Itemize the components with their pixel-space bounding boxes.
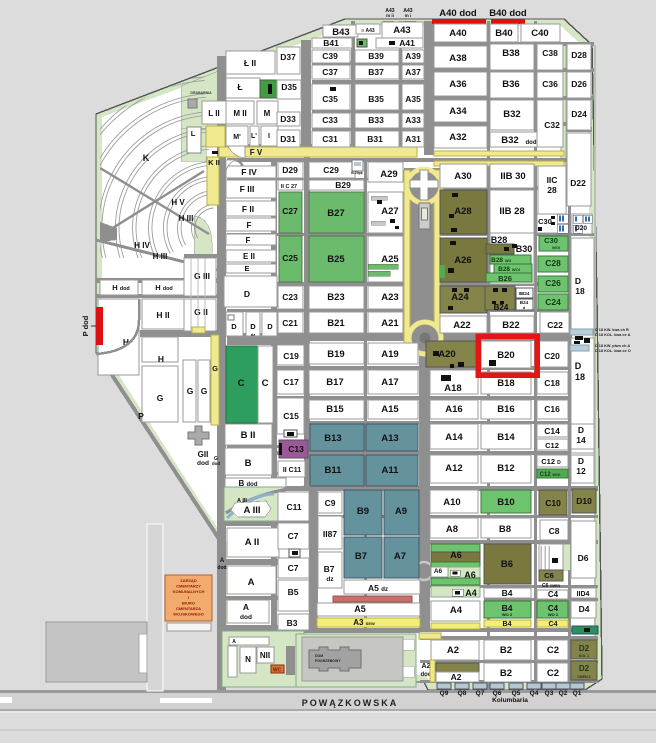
svg-text:D: D <box>267 322 273 331</box>
svg-text:B26: B26 <box>498 274 512 283</box>
svg-text:B31: B31 <box>367 134 383 144</box>
svg-text:C11: C11 <box>286 502 301 512</box>
svg-text:D26: D26 <box>571 79 587 89</box>
svg-text:B: B <box>245 458 252 469</box>
svg-text:B II: B II <box>241 430 256 441</box>
svg-text:B10: B10 <box>497 497 514 508</box>
svg-text:C30: C30 <box>538 217 552 226</box>
svg-text:D6: D6 <box>578 553 589 563</box>
svg-text:M: M <box>264 109 271 118</box>
svg-text:A37: A37 <box>405 67 421 77</box>
svg-text:B39: B39 <box>368 51 384 61</box>
svg-text:B15: B15 <box>326 404 344 415</box>
svg-text:B36: B36 <box>502 79 519 90</box>
svg-text:D33: D33 <box>280 114 296 124</box>
svg-text:I: I <box>188 595 189 600</box>
svg-text:m i: m i <box>405 13 412 18</box>
svg-text:Kolumbaria: Kolumbaria <box>492 697 528 704</box>
svg-text:A6: A6 <box>450 550 462 560</box>
svg-text:B28: B28 <box>491 235 508 245</box>
svg-text:B37: B37 <box>368 67 384 77</box>
svg-text:B18: B18 <box>497 378 514 389</box>
svg-text:B32: B32 <box>501 135 518 146</box>
svg-text:C30: C30 <box>544 236 558 245</box>
svg-text:D35: D35 <box>281 82 297 92</box>
svg-text:D29: D29 <box>282 165 298 175</box>
svg-text:dod: dod <box>526 140 537 146</box>
svg-text:IIB 28: IIB 28 <box>499 206 524 217</box>
svg-text:A4: A4 <box>450 605 463 616</box>
svg-text:D: D <box>231 322 237 331</box>
svg-text:D20: D20 <box>575 225 587 232</box>
svg-text:C36: C36 <box>542 79 558 89</box>
svg-text:C: C <box>262 378 269 389</box>
svg-text:F: F <box>247 221 252 230</box>
svg-text:A33: A33 <box>405 115 421 125</box>
svg-text:II C11: II C11 <box>283 467 301 474</box>
svg-text:IIC: IIC <box>547 175 558 185</box>
svg-text:B.29pk: B.29pk <box>351 171 363 175</box>
svg-text:A28: A28 <box>454 206 471 217</box>
svg-text:POWĄZKOWSKA: POWĄZKOWSKA <box>302 698 399 708</box>
svg-text:L II: L II <box>208 109 219 118</box>
svg-text:D22: D22 <box>570 178 586 188</box>
svg-text:Q2: Q2 <box>559 690 568 697</box>
svg-text:B14: B14 <box>497 432 515 443</box>
svg-text:B21: B21 <box>327 318 345 329</box>
svg-text:A38: A38 <box>449 53 466 64</box>
svg-text:A II: A II <box>245 537 259 548</box>
svg-text:A30: A30 <box>454 171 471 182</box>
svg-text:dod: dod <box>197 460 209 467</box>
svg-text:C33: C33 <box>322 115 338 125</box>
svg-text:C20: C20 <box>544 351 560 361</box>
svg-text:G II: G II <box>194 307 208 317</box>
svg-text:A: A <box>248 577 255 588</box>
svg-text:C12: C12 <box>545 441 559 450</box>
svg-text:A2: A2 <box>447 645 459 656</box>
svg-text:ZARZĄD: ZARZĄD <box>180 578 197 583</box>
svg-text:D: D <box>578 425 584 435</box>
svg-text:POGRZEBOWY: POGRZEBOWY <box>315 659 341 663</box>
svg-text:H V: H V <box>171 198 185 207</box>
svg-text:Q9: Q9 <box>440 690 449 697</box>
svg-text:C9: C9 <box>325 498 336 508</box>
svg-text:WOJSKOWEGO: WOJSKOWEGO <box>173 612 203 617</box>
svg-text:A41: A41 <box>399 38 415 48</box>
svg-text:B19: B19 <box>327 349 344 360</box>
svg-text:D: D <box>575 276 581 286</box>
svg-text:A19: A19 <box>381 349 398 360</box>
svg-text:A39: A39 <box>405 51 421 61</box>
svg-text:B16: B16 <box>497 404 514 415</box>
svg-text:P dod: P dod <box>81 315 90 336</box>
svg-text:C38: C38 <box>542 48 558 58</box>
svg-text:Q3: Q3 <box>545 690 554 697</box>
svg-text:C4: C4 <box>549 621 558 628</box>
svg-text:B30: B30 <box>516 244 533 254</box>
svg-text:DOM: DOM <box>315 654 323 658</box>
svg-text:A18: A18 <box>444 383 461 394</box>
svg-text:B5: B5 <box>288 587 299 597</box>
svg-text:C19: C19 <box>283 351 299 361</box>
svg-text:A III: A III <box>243 505 260 516</box>
svg-text:B20: B20 <box>497 350 514 361</box>
svg-text:M': M' <box>233 134 241 141</box>
svg-text:Q6: Q6 <box>493 690 502 697</box>
svg-text:K: K <box>143 153 150 163</box>
svg-text:A10: A10 <box>443 497 460 508</box>
svg-text:D: D <box>575 361 582 371</box>
svg-text:C40: C40 <box>531 28 548 39</box>
svg-text:C13: C13 <box>288 444 304 454</box>
svg-text:Q1: Q1 <box>573 690 582 697</box>
svg-text:C29: C29 <box>323 165 339 175</box>
svg-text:A26: A26 <box>454 255 471 266</box>
svg-text:B23: B23 <box>327 292 344 303</box>
svg-text:L: L <box>191 129 196 138</box>
svg-text:B2: B2 <box>500 645 512 656</box>
svg-text:m ii: m ii <box>386 13 394 18</box>
svg-text:C35: C35 <box>322 94 338 104</box>
svg-text:F V: F V <box>250 148 263 157</box>
svg-text:D: D <box>250 322 256 331</box>
svg-text:B9: B9 <box>357 506 369 517</box>
svg-text:WOI: WOI <box>552 245 560 250</box>
svg-text:C2: C2 <box>547 668 559 679</box>
svg-text:B7: B7 <box>355 551 367 562</box>
svg-text:C17: C17 <box>283 377 299 387</box>
svg-text:WO 2: WO 2 <box>548 612 559 617</box>
svg-text:KOL 1: KOL 1 <box>579 654 589 658</box>
svg-text:B33: B33 <box>368 115 384 125</box>
svg-text:A32: A32 <box>449 132 466 143</box>
svg-text:C15: C15 <box>283 411 299 421</box>
svg-text:28: 28 <box>547 185 557 195</box>
svg-text:C8: C8 <box>549 526 560 536</box>
svg-text:D2: D2 <box>579 664 590 673</box>
svg-text:A15: A15 <box>381 404 399 415</box>
svg-text:B11: B11 <box>325 465 343 476</box>
svg-text:C10: C10 <box>545 498 561 508</box>
svg-text:A2: A2 <box>422 663 431 670</box>
svg-text:B22: B22 <box>502 320 519 331</box>
svg-text:IIB 30: IIB 30 <box>500 171 525 182</box>
svg-text:dod: dod <box>217 565 226 571</box>
svg-text:F IV: F IV <box>241 167 257 177</box>
svg-text:H III: H III <box>179 214 194 223</box>
svg-text:D: D <box>244 289 250 299</box>
svg-text:C32: C32 <box>544 120 560 130</box>
svg-text:B28 WOI: B28 WOI <box>498 266 520 273</box>
svg-text:NII: NII <box>260 651 270 660</box>
svg-text:C22: C22 <box>547 320 563 330</box>
svg-text:B7: B7 <box>324 564 335 574</box>
svg-text:A: A <box>243 602 249 612</box>
svg-text:L': L' <box>251 133 257 140</box>
svg-text:A35: A35 <box>405 94 421 104</box>
svg-text:WO 2: WO 2 <box>502 612 513 617</box>
svg-text:B27: B27 <box>327 208 344 219</box>
svg-text:Q4: Q4 <box>530 690 539 697</box>
svg-text:A40 dod: A40 dod <box>439 8 477 19</box>
svg-text:dz: dz <box>326 576 334 583</box>
svg-text:GII: GII <box>198 450 209 459</box>
svg-text:E II: E II <box>243 252 255 261</box>
svg-text:B35: B35 <box>368 94 384 104</box>
svg-text:C37: C37 <box>322 67 338 77</box>
svg-text:C2: C2 <box>547 645 559 656</box>
svg-text:C25: C25 <box>282 253 298 263</box>
svg-text:A2: A2 <box>451 672 462 682</box>
svg-text:A24: A24 <box>451 292 469 303</box>
svg-text:F III: F III <box>240 184 255 194</box>
svg-text:I: I <box>268 133 270 140</box>
svg-text:D 18 KOL. kwa ce O: D 18 KOL. kwa ce O <box>595 349 631 353</box>
svg-text:B38: B38 <box>502 48 519 59</box>
svg-text:G III: G III <box>194 271 210 281</box>
svg-text:Ł: Ł <box>237 82 242 92</box>
svg-text:C6: C6 <box>544 571 554 580</box>
svg-text:B4: B4 <box>502 588 513 598</box>
svg-text:14: 14 <box>576 435 586 445</box>
svg-text:C24: C24 <box>545 297 561 307</box>
svg-text:K II: K II <box>208 158 220 167</box>
svg-text:B32: B32 <box>503 109 520 120</box>
svg-text:WC: WC <box>273 668 282 674</box>
svg-text:A12: A12 <box>445 463 462 474</box>
svg-text:CMENTARZA: CMENTARZA <box>176 606 201 611</box>
svg-text:C21: C21 <box>282 318 298 328</box>
svg-text:B40: B40 <box>495 28 512 39</box>
svg-text:A40: A40 <box>449 28 466 39</box>
svg-text:C23: C23 <box>282 292 298 302</box>
svg-text:C7: C7 <box>288 563 299 573</box>
svg-text:≡ A43: ≡ A43 <box>361 28 375 34</box>
svg-text:GRABARNIA: GRABARNIA <box>190 91 212 95</box>
svg-text:P: P <box>138 411 144 421</box>
svg-text:C: C <box>238 378 245 389</box>
svg-text:B3: B3 <box>287 618 298 628</box>
svg-text:A8: A8 <box>446 524 458 535</box>
svg-text:N: N <box>245 655 251 664</box>
svg-text:A23: A23 <box>381 292 398 303</box>
svg-text:D 18 KOL. kwa ce A: D 18 KOL. kwa ce A <box>595 333 631 337</box>
svg-text:D: D <box>578 456 584 466</box>
svg-text:A27: A27 <box>381 206 398 217</box>
svg-text:C4: C4 <box>548 590 559 599</box>
svg-text:Q7: Q7 <box>476 690 485 697</box>
svg-text:12: 12 <box>576 466 586 476</box>
svg-text:A34: A34 <box>449 106 467 117</box>
svg-text:H: H <box>158 354 164 364</box>
svg-text:A13: A13 <box>381 433 398 444</box>
svg-text:G: G <box>187 386 194 396</box>
svg-text:C16: C16 <box>544 404 560 414</box>
svg-text:C39: C39 <box>322 51 338 61</box>
svg-text:A25: A25 <box>381 254 399 265</box>
svg-text:18: 18 <box>575 372 585 382</box>
svg-text:KOMUNALNYCH: KOMUNALNYCH <box>173 589 205 594</box>
svg-text:D28: D28 <box>571 50 587 60</box>
svg-text:CMEN 2: CMEN 2 <box>577 675 590 679</box>
svg-text:Ł II: Ł II <box>244 58 256 68</box>
svg-text:B17: B17 <box>326 377 343 388</box>
svg-text:B6: B6 <box>501 559 513 570</box>
svg-text:A: A <box>220 558 225 564</box>
svg-text:C27: C27 <box>282 206 298 216</box>
svg-text:C7: C7 <box>288 531 299 541</box>
svg-text:D10: D10 <box>576 496 592 506</box>
svg-text:A11: A11 <box>382 465 400 476</box>
svg-text:C28: C28 <box>545 258 561 268</box>
svg-text:D37: D37 <box>280 52 296 62</box>
svg-text:Q5: Q5 <box>512 690 521 697</box>
svg-text:A17: A17 <box>381 377 398 388</box>
svg-text:A36: A36 <box>449 79 466 90</box>
svg-text:A21: A21 <box>381 318 399 329</box>
svg-text:B12: B12 <box>497 463 514 474</box>
svg-text:C14: C14 <box>544 426 560 436</box>
svg-text:F II: F II <box>242 204 254 214</box>
svg-text:B29: B29 <box>335 180 351 190</box>
svg-text:G: G <box>212 364 218 373</box>
svg-text:B43: B43 <box>332 27 349 38</box>
svg-text:A5: A5 <box>354 604 366 614</box>
svg-text:F: F <box>246 236 251 245</box>
svg-text:G: G <box>157 393 164 403</box>
svg-text:IID4: IID4 <box>577 591 590 598</box>
svg-text:M II: M II <box>233 109 246 118</box>
svg-text:dod: dod <box>240 614 252 621</box>
svg-text:A29: A29 <box>380 169 397 180</box>
svg-text:D4: D4 <box>579 604 590 614</box>
svg-text:H II: H II <box>156 310 169 320</box>
svg-text:II87: II87 <box>323 529 337 539</box>
svg-text:H IV: H IV <box>134 241 150 250</box>
svg-text:IIB24: IIB24 <box>519 291 530 296</box>
svg-text:B25: B25 <box>327 254 345 265</box>
svg-text:A6: A6 <box>434 568 443 575</box>
svg-text:B8: B8 <box>499 524 511 535</box>
svg-text:D24: D24 <box>571 109 587 119</box>
svg-text:D 18 KW. kwa ch R: D 18 KW. kwa ch R <box>595 328 629 332</box>
svg-text:G: G <box>201 386 208 396</box>
svg-text:H III: H III <box>153 252 168 261</box>
svg-text:A43: A43 <box>393 25 410 36</box>
svg-text:B2: B2 <box>500 668 512 679</box>
svg-text:E: E <box>244 264 249 273</box>
svg-text:B28 WII: B28 WII <box>491 257 511 264</box>
svg-text:dz: dz <box>251 332 255 337</box>
svg-text:A14: A14 <box>445 432 463 443</box>
svg-text:C18: C18 <box>544 378 560 388</box>
svg-text:A16: A16 <box>445 404 462 415</box>
svg-text:18: 18 <box>575 286 585 296</box>
svg-text:A20: A20 <box>438 349 455 360</box>
svg-text:dod: dod <box>212 461 220 466</box>
svg-text:BIURO: BIURO <box>182 600 195 605</box>
svg-text:Q8: Q8 <box>458 690 467 697</box>
svg-text:B4: B4 <box>503 621 512 628</box>
svg-text:D2: D2 <box>579 644 590 653</box>
svg-text:A4: A4 <box>465 588 477 598</box>
svg-text:A7: A7 <box>394 551 406 562</box>
svg-text:B41: B41 <box>323 38 339 48</box>
svg-text:C31: C31 <box>322 134 338 144</box>
svg-text:II C 27: II C 27 <box>281 184 297 190</box>
svg-text:B24: B24 <box>494 303 509 312</box>
svg-text:A22: A22 <box>453 320 470 331</box>
svg-text:C26: C26 <box>545 278 561 288</box>
svg-text:D 18 KW. piwn ch A: D 18 KW. piwn ch A <box>595 344 630 348</box>
svg-text:B40 dod: B40 dod <box>489 8 527 19</box>
svg-text:B13: B13 <box>324 433 341 444</box>
svg-text:A9: A9 <box>395 506 407 517</box>
svg-text:D31: D31 <box>280 134 296 144</box>
svg-text:A31: A31 <box>405 134 421 144</box>
svg-text:CMENTARZY: CMENTARZY <box>176 584 201 589</box>
